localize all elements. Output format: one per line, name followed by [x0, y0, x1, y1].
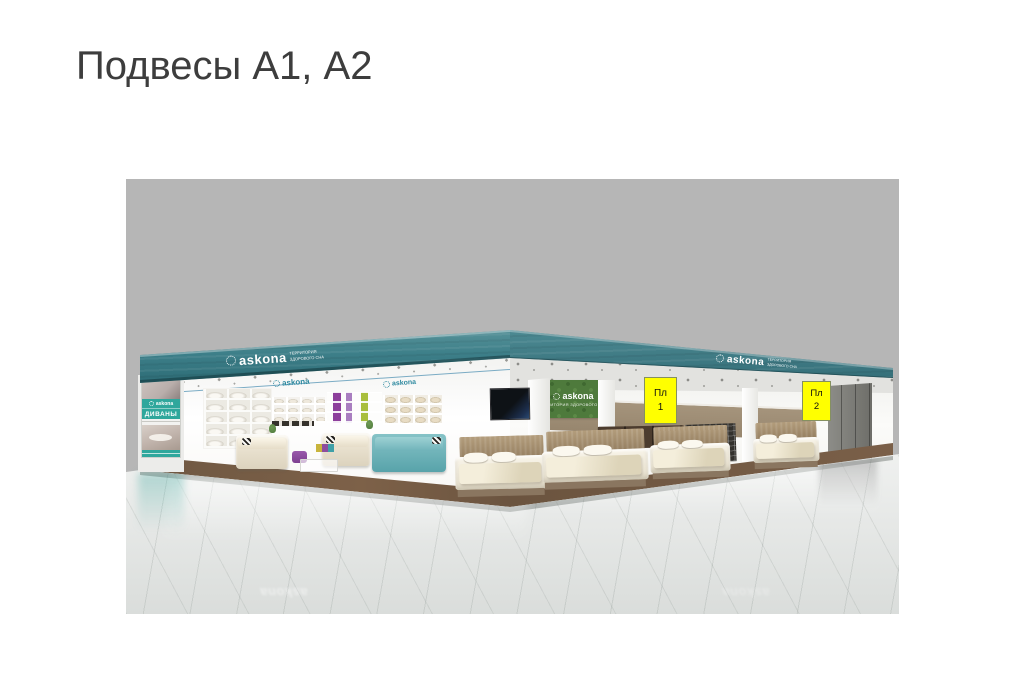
askona-dot-ring-icon	[273, 380, 280, 387]
display-bed	[541, 428, 649, 490]
bed-pillow	[759, 434, 776, 442]
tv-screen	[490, 388, 531, 421]
fascia-tagline-line2: ЗДОРОВОГО СНА	[290, 354, 324, 362]
display-bed	[454, 435, 548, 497]
interior-sign-text: askona	[392, 379, 417, 388]
patterned-pillow	[432, 437, 441, 444]
askona-dot-ring-icon	[553, 393, 560, 400]
bed-duvet	[756, 442, 815, 460]
small-cubby-shelf	[272, 397, 325, 423]
store-render-image: askona askona askona askona	[126, 179, 899, 614]
bed-duvet	[459, 462, 541, 485]
bed-pillow	[491, 451, 515, 462]
banner-photo-bottom	[142, 425, 180, 450]
floor-reflection-logo-text: askona	[259, 585, 309, 600]
coffee-table	[300, 459, 338, 472]
green-sign-text: askona	[562, 391, 593, 401]
banner-askona-logo: askona	[142, 399, 180, 408]
beige-pillow-shelf	[383, 395, 442, 425]
bed-duvet	[546, 455, 641, 478]
price-sign-row	[272, 421, 314, 426]
patterned-pillow	[242, 438, 251, 445]
interior-sign-text: askona	[282, 377, 310, 388]
bed-pillow	[779, 434, 796, 442]
banner-category-label: ДИВАНЫ	[142, 408, 180, 419]
label-line2: 1	[658, 401, 664, 415]
slide-title: Подвесы А1, А2	[76, 44, 372, 89]
textile-display-shelf	[327, 392, 382, 423]
label-line1: Пл	[654, 387, 667, 401]
patterned-pillow	[326, 436, 335, 443]
floor-reflection-logo-text: askona	[721, 585, 771, 600]
interior-askona-sign-1: askona	[273, 377, 310, 388]
bed-duvet	[653, 448, 725, 468]
slide: Подвесы А1, А2 askona askona askona asko…	[0, 0, 1024, 681]
sofas-roll-banner: askona ДИВАНЫ	[141, 378, 181, 458]
display-bed	[752, 421, 820, 469]
plant	[269, 424, 276, 433]
askona-dot-ring-icon	[149, 401, 154, 406]
fascia-tagline: ТЕРРИТОРИЯ ЗДОРОВОГО СНА	[289, 349, 324, 362]
interior-askona-sign-2: askona	[383, 379, 417, 388]
label-line2: 2	[814, 401, 819, 414]
display-bed	[649, 425, 731, 480]
bed-pillow	[464, 452, 488, 463]
suspension-label-pl2: Пл 2	[802, 381, 831, 421]
askona-dot-ring-icon	[226, 355, 237, 366]
askona-dot-ring-icon	[383, 381, 390, 388]
colored-poufs	[316, 444, 334, 452]
banner-brand-text: askona	[156, 401, 173, 407]
suspension-label-pl1: Пл 1	[644, 377, 677, 424]
green-askona-wall-sign: askona ТЕРРИТОРИЯ ЗДОРОВОГО СНА	[547, 380, 600, 418]
plant	[366, 420, 373, 429]
askona-dot-ring-icon	[716, 354, 725, 363]
green-sign-logo: askona	[553, 391, 593, 401]
banner-bottom-strip	[142, 450, 180, 457]
label-line1: Пл	[810, 388, 822, 401]
fascia-tagline: ТЕРРИТОРИЯ ЗДОРОВОГО СНА	[767, 358, 798, 370]
bed-pillow	[584, 444, 612, 455]
